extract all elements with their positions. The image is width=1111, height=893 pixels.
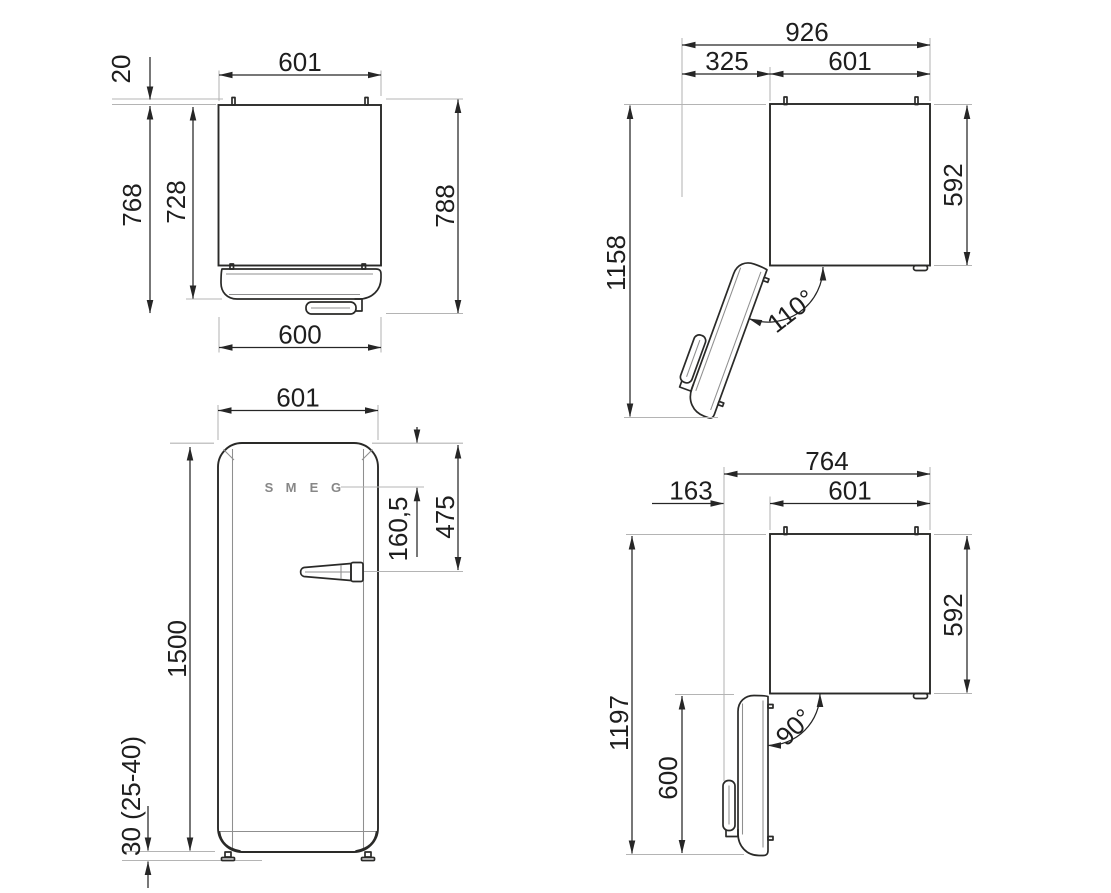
hinge-pin-right [365, 98, 368, 106]
door-open-90 [723, 696, 773, 856]
dim-label-opening-angle: 90° [769, 702, 818, 751]
logo-letter-s: S [265, 480, 274, 495]
dim-label-handle-from-top: 475 [430, 495, 460, 538]
dim-label-door-width: 600 [653, 756, 683, 799]
dim-label-cabinet-width: 601 [828, 46, 871, 76]
dim-label-depth-cabinet: 728 [161, 180, 191, 223]
door-closed [221, 264, 381, 314]
foot-right-stem [365, 852, 371, 857]
plinth-arc-left [220, 832, 241, 851]
dim-label-overall-width: 764 [805, 446, 848, 476]
dim-label-cabinet-width: 601 [828, 476, 871, 506]
cabinet-plan [219, 105, 382, 266]
dim-label-depth-total: 788 [430, 184, 460, 227]
view-top-open-90: 764 163 601 1197 600 592 90° [604, 446, 972, 856]
hinge-bracket-bottom [914, 266, 928, 271]
handle-mount-front [351, 563, 363, 582]
dim-label-hinge-protrusion: 20 [106, 55, 136, 84]
logo-letter-g: G [331, 480, 341, 495]
dim-label-overall-depth: 1197 [604, 695, 634, 751]
dim-label-width: 601 [276, 383, 319, 413]
cabinet-plan [770, 104, 930, 266]
foot-left-stem [225, 852, 231, 857]
hinge-pin-left [232, 98, 235, 106]
dim-label-overall-depth: 1158 [601, 235, 631, 291]
dimension-drawing-page: 601 20 768 728 788 600 926 325 601 [0, 0, 1111, 893]
dim-label-depth-no-hinge: 768 [117, 183, 147, 226]
technical-drawing: 601 20 768 728 788 600 926 325 601 [0, 0, 1111, 893]
dim-label-overall-width: 926 [785, 17, 828, 47]
view-front: 601 S M E G 475 160,5 1500 30 (25-40) [116, 383, 463, 889]
cabinet-plan [770, 534, 930, 694]
dim-label-door-clearance: 163 [669, 476, 712, 506]
dim-label-cabinet-depth: 592 [938, 593, 968, 636]
plinth-arc-right [356, 832, 377, 851]
fridge-front-body [218, 443, 378, 852]
view-top-open-110: 926 325 601 1158 592 110° [601, 17, 972, 421]
foot-right-base [362, 858, 375, 861]
dim-label-width-top: 601 [278, 47, 321, 77]
dim-label-height: 1500 [162, 620, 192, 678]
dim-label-door-clearance: 325 [705, 46, 748, 76]
foot-left-base [222, 858, 235, 861]
dim-label-cabinet-depth: 592 [938, 163, 968, 206]
dim-label-logo-from-top: 160,5 [383, 496, 413, 561]
door-open-110 [670, 253, 772, 420]
dim-label-feet-height: 30 (25-40) [116, 736, 146, 856]
logo-letter-e: E [310, 480, 319, 495]
logo-letter-m: M [286, 480, 297, 495]
dim-label-door-width: 600 [278, 320, 321, 350]
hinge-bracket-bottom [914, 694, 928, 699]
dim-label-opening-angle: 110° [761, 283, 820, 339]
view-top-closed: 601 20 768 728 788 600 [106, 47, 463, 353]
